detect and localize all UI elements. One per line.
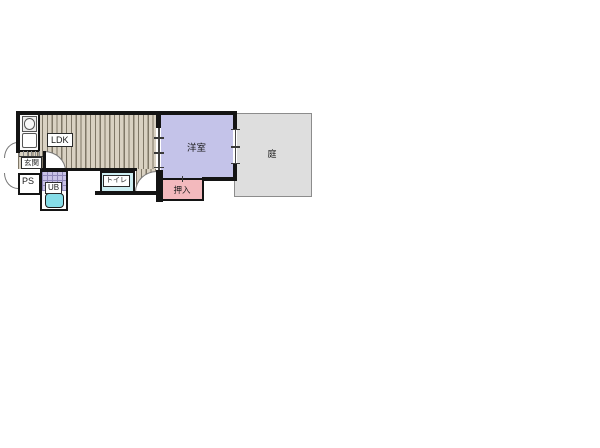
wall-left xyxy=(16,111,20,153)
wall-right-upper xyxy=(233,111,237,129)
stove-burner-icon xyxy=(22,116,37,132)
toilet-label: トイレ xyxy=(103,175,130,187)
ps-label: PS xyxy=(21,176,35,186)
sliding-door-tick xyxy=(154,167,164,169)
genkan-label: 玄関 xyxy=(21,157,42,170)
oshiire-label: 押入 xyxy=(162,184,202,196)
wall-western-room-bottom xyxy=(202,177,237,181)
kitchen-sink-icon xyxy=(22,133,37,149)
floor-plan: LDK 玄関 PS UB トイレ 洋室 押入 庭 xyxy=(0,0,600,448)
western-room-label: 洋室 xyxy=(160,140,234,154)
entry-door-swing-lower-icon xyxy=(4,173,18,189)
oshiire-door-tick xyxy=(182,176,184,182)
garden-label: 庭 xyxy=(234,147,310,160)
wall-hall-bottom xyxy=(95,191,162,195)
sliding-door-tick xyxy=(154,137,164,139)
window-tick xyxy=(231,129,240,131)
wall-ldk-bottom xyxy=(40,168,137,171)
ldk-label: LDK xyxy=(47,133,73,147)
bathtub-icon xyxy=(45,193,64,208)
ub-label: UB xyxy=(45,182,62,194)
kitchen-unit xyxy=(18,112,41,153)
wall-partition-top xyxy=(156,111,161,128)
wall-top xyxy=(16,111,237,115)
wall-right-lower xyxy=(233,164,237,181)
window-tick xyxy=(231,163,240,165)
floor-plan-page: LDK 玄関 PS UB トイレ 洋室 押入 庭 xyxy=(0,0,600,448)
